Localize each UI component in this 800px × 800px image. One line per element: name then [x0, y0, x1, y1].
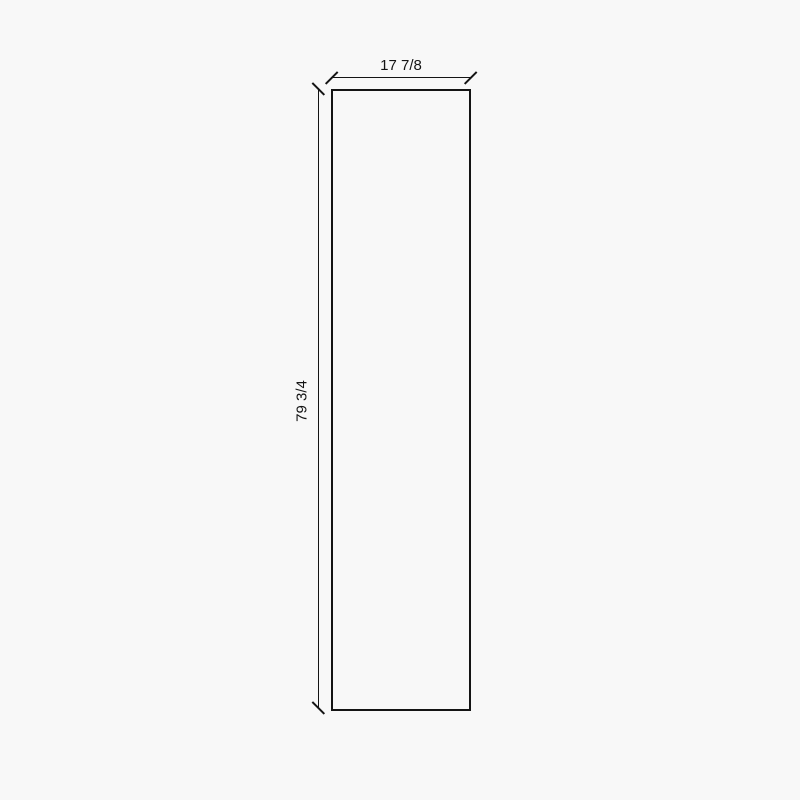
drawing-canvas: 17 7/8 79 3/4 — [0, 0, 800, 800]
width-dimension-label: 17 7/8 — [331, 58, 471, 73]
panel-outline — [331, 89, 471, 711]
width-dimension-line — [331, 77, 471, 79]
height-dimension-line — [318, 88, 320, 709]
height-dimension-label: 79 3/4 — [295, 380, 310, 422]
